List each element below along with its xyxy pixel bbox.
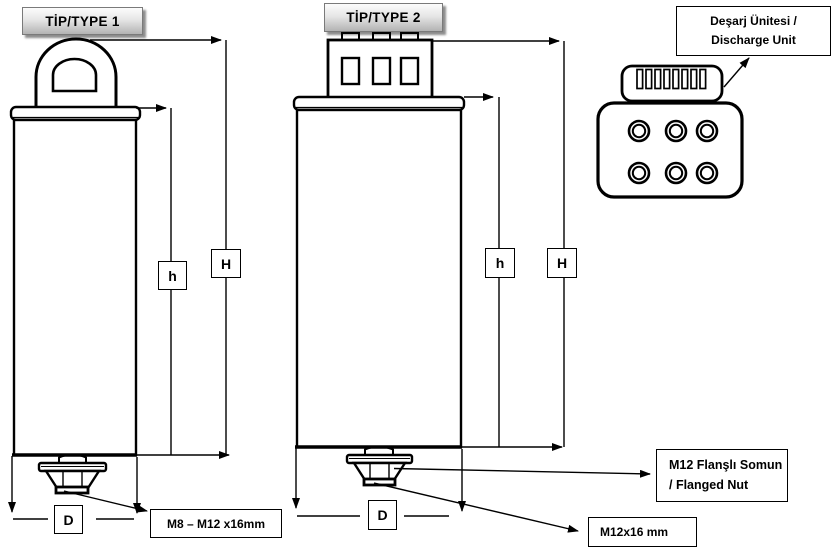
- type1-stud-note-box: M8 – M12 x16mm: [150, 509, 282, 538]
- type2-stud-note-label: M12x16 mm: [600, 525, 668, 539]
- type1-stud-note-label: M8 – M12 x16mm: [167, 517, 265, 531]
- discharge-unit-drawing: [598, 58, 749, 197]
- discharge-unit-note-box: Deşarj Ünitesi / Discharge Unit: [676, 6, 831, 56]
- discharge-unit-leader-line: [724, 58, 749, 87]
- type2-nut-label-line2: / Flanged Nut: [669, 476, 748, 495]
- type1-title-box: TİP/TYPE 1: [22, 7, 143, 35]
- technical-diagram-canvas: TİP/TYPE 1 TİP/TYPE 2 Deşarj Ünitesi / D…: [0, 0, 839, 554]
- type2-can: [294, 97, 464, 447]
- type2-terminal-block: [328, 33, 432, 99]
- type2-mounting-stud: [347, 447, 412, 486]
- type1-dim-h-label: h: [168, 268, 177, 284]
- discharge-unit-label-line2: Discharge Unit: [711, 31, 796, 50]
- type2-dim-h-label: h: [496, 255, 505, 271]
- type2-title-label: TİP/TYPE 2: [346, 10, 420, 25]
- type2-dim-D-box: D: [368, 500, 397, 530]
- type2-stud-leader-line: [374, 483, 578, 531]
- type2-stud-note-box: M12x16 mm: [588, 517, 697, 547]
- type2-title-box: TİP/TYPE 2: [324, 3, 443, 32]
- type2-dim-h-box: h: [485, 248, 515, 278]
- type2-dim-H-label: H: [557, 255, 567, 271]
- discharge-unit-label-line1: Deşarj Ünitesi /: [710, 12, 797, 31]
- type2-nut-leader-line: [394, 469, 650, 475]
- type1-lifting-eye: [36, 39, 116, 109]
- type1-can: [11, 107, 140, 455]
- type1-dim-D-box: D: [54, 505, 83, 534]
- type1-capacitor-drawing: [11, 39, 229, 519]
- discharge-unit-connector: [622, 66, 722, 101]
- type1-dim-D-label: D: [63, 512, 73, 528]
- type2-nut-label-line1: M12 Flanşlı Somun: [669, 456, 782, 475]
- type1-dim-h-box: h: [158, 261, 187, 290]
- type1-title-label: TİP/TYPE 1: [45, 14, 119, 29]
- type1-dim-H-box: H: [211, 249, 241, 278]
- type2-capacitor-drawing: [294, 33, 650, 531]
- type2-nut-note-box: M12 Flanşlı Somun / Flanged Nut: [656, 449, 788, 502]
- type1-dim-H-label: H: [221, 256, 231, 272]
- discharge-unit-body: [598, 103, 742, 197]
- type2-dim-H-box: H: [547, 248, 577, 278]
- type2-dim-D-label: D: [377, 507, 387, 523]
- type1-mounting-stud: [39, 455, 106, 494]
